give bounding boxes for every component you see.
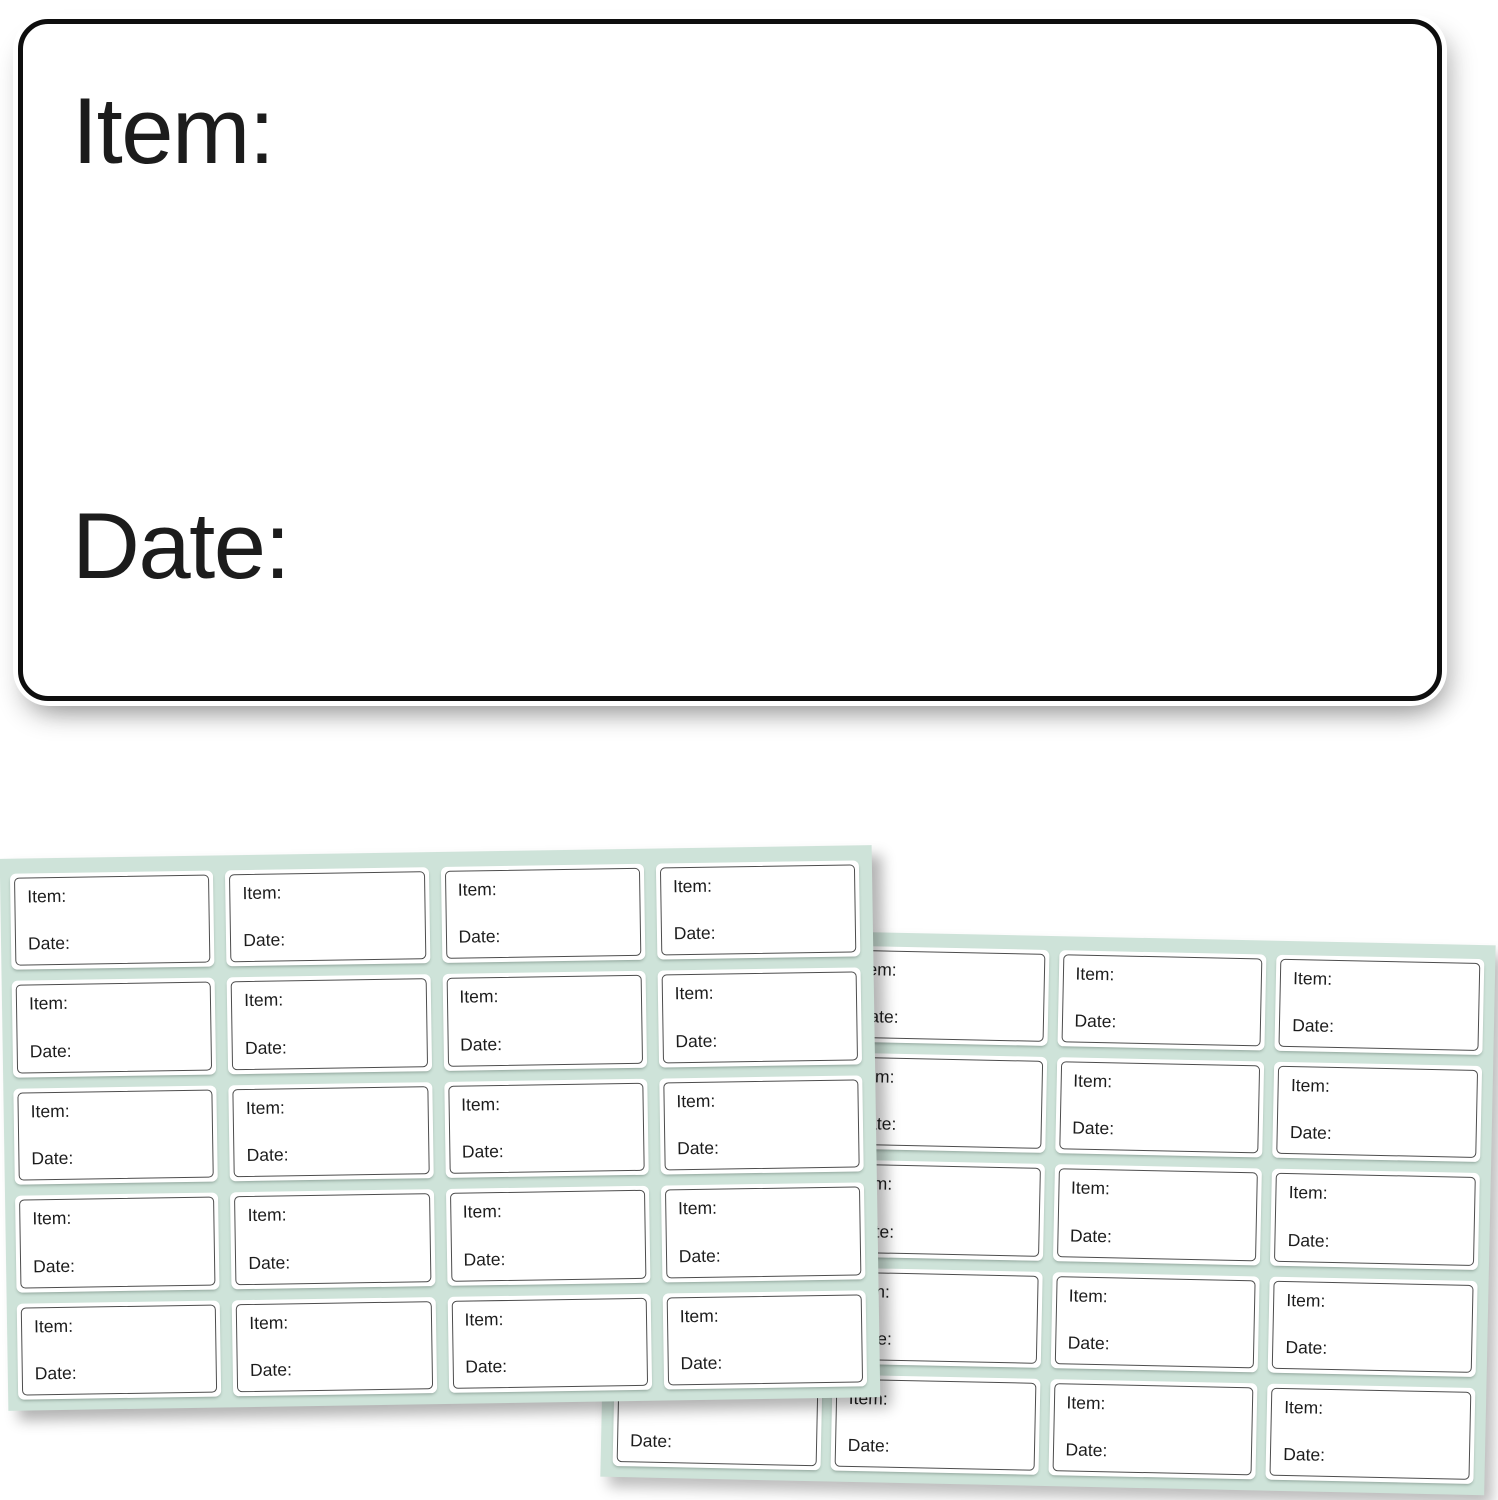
mini-item-text: Item: [680, 1305, 719, 1327]
mini-label-border: Item:Date: [450, 1190, 647, 1281]
mini-date-text: Date: [31, 1148, 73, 1170]
mini-label: Item:Date: [232, 1297, 437, 1397]
mini-date-text: Date: [1065, 1439, 1107, 1461]
mini-item-text: Item: [1073, 1071, 1112, 1093]
mini-item-text: Item: [29, 993, 68, 1015]
mini-label-border: Item:Date: [446, 975, 643, 1066]
mini-label-border: Item:Date: [1272, 1280, 1474, 1372]
mini-date-text: Date: [35, 1363, 77, 1385]
mini-label: Item:Date: [1050, 1272, 1260, 1373]
mini-date-text: Date: [465, 1356, 507, 1378]
mini-item-text: Item: [1291, 1075, 1330, 1097]
mini-item-text: Item: [246, 1097, 285, 1119]
mini-label: Item:Date: [657, 968, 862, 1068]
mini-label: Item:Date: [1048, 1379, 1258, 1480]
mini-date-text: Date: [248, 1252, 290, 1274]
mini-label-border: Item:Date: [660, 864, 857, 955]
mini-label-border: Item:Date: [1057, 1169, 1259, 1261]
product-photo: { "big_label": { "item": "Item:", "date"… [0, 0, 1498, 1500]
mini-item-text: Item: [249, 1312, 288, 1334]
mini-label-border: Item:Date: [666, 1294, 863, 1385]
mini-date-text: Date: [250, 1359, 292, 1381]
mini-item-text: Item: [32, 1208, 71, 1230]
mini-label: Item:Date: [1275, 955, 1485, 1056]
mini-label: Item:Date: [440, 864, 645, 964]
mini-item-text: Item: [27, 886, 66, 908]
mini-date-text: Date: [1287, 1230, 1329, 1252]
mini-label-border: Item:Date: [21, 1304, 218, 1395]
mini-item-text: Item: [676, 1090, 715, 1112]
mini-label: Item:Date: [662, 1290, 867, 1390]
mini-date-text: Date: [245, 1037, 287, 1059]
mini-label: Item:Date: [229, 1082, 434, 1182]
mini-label: Item:Date: [15, 1193, 220, 1293]
mini-label: Item:Date: [656, 860, 861, 960]
mini-label: Item:Date: [1057, 950, 1267, 1051]
mini-label: Item:Date: [659, 1075, 864, 1175]
mini-label: Item:Date: [1270, 1169, 1480, 1270]
mini-label: Item:Date: [230, 1189, 435, 1289]
mini-label-border: Item:Date: [19, 1197, 216, 1288]
mini-item-text: Item: [1286, 1290, 1325, 1312]
date-field-label: Date: [72, 499, 289, 593]
mini-item-text: Item: [1071, 1178, 1110, 1200]
mini-date-text: Date: [243, 930, 285, 952]
mini-item-text: Item: [1075, 964, 1114, 986]
mini-item-text: Item: [461, 1094, 500, 1116]
mini-date-text: Date: [1072, 1118, 1114, 1140]
mini-label-border: Item:Date: [663, 1079, 860, 1170]
mini-item-text: Item: [242, 882, 281, 904]
mini-label-border: Item:Date: [448, 1083, 645, 1174]
mini-label-border: Item:Date: [1279, 959, 1481, 1051]
sample-label-large: Item: Date: [13, 14, 1447, 706]
mini-label-border: Item:Date: [236, 1301, 433, 1392]
mini-date-text: Date: [630, 1430, 672, 1452]
mini-item-text: Item: [34, 1315, 73, 1337]
mini-date-text: Date: [679, 1245, 721, 1267]
mini-date-text: Date: [460, 1034, 502, 1056]
mini-label-border: Item:Date: [661, 972, 858, 1063]
mini-date-text: Date: [1070, 1225, 1112, 1247]
mini-label-border: Item:Date: [16, 982, 213, 1073]
mini-date-text: Date: [458, 926, 500, 948]
mini-item-text: Item: [31, 1101, 70, 1123]
mini-date-text: Date: [674, 923, 716, 945]
mini-label-border: Item:Date: [1270, 1388, 1472, 1480]
mini-item-text: Item: [1288, 1182, 1327, 1204]
mini-label: Item:Date: [1266, 1383, 1476, 1484]
mini-label: Item:Date: [12, 978, 217, 1078]
mini-item-text: Item: [464, 1309, 503, 1331]
mini-label-border: Item:Date: [14, 875, 211, 966]
mini-date-text: Date: [680, 1353, 722, 1375]
mini-label: Item:Date: [447, 1293, 652, 1393]
mini-label-border: Item:Date: [1054, 1276, 1256, 1368]
mini-label-border: Item:Date: [1276, 1066, 1478, 1158]
mini-label-border: Item:Date: [451, 1297, 648, 1388]
mini-item-text: Item: [673, 876, 712, 898]
mini-label: Item:Date: [444, 1079, 649, 1179]
mini-date-text: Date: [1292, 1015, 1334, 1037]
item-field-label: Item: [72, 84, 273, 178]
mini-label-border: Item:Date: [233, 1086, 430, 1177]
mini-date-text: Date: [1285, 1337, 1327, 1359]
mini-date-text: Date: [33, 1255, 75, 1277]
mini-label: Item:Date: [10, 871, 215, 971]
mini-label: Item:Date: [17, 1300, 222, 1400]
label-border-frame: Item: Date: [18, 19, 1442, 701]
mini-date-text: Date: [246, 1145, 288, 1167]
mini-label-border: Item:Date: [234, 1193, 431, 1284]
mini-item-text: Item: [463, 1201, 502, 1223]
label-sheet-left: Item:Date:Item:Date:Item:Date:Item:Date:… [0, 845, 880, 1411]
mini-label-border: Item:Date: [231, 979, 428, 1070]
mini-date-text: Date: [1283, 1444, 1325, 1466]
mini-item-text: Item: [247, 1205, 286, 1227]
mini-item-text: Item: [1066, 1392, 1105, 1414]
mini-item-text: Item: [1069, 1285, 1108, 1307]
mini-date-text: Date: [1074, 1011, 1116, 1033]
mini-label-border: Item:Date: [1061, 954, 1263, 1046]
mini-item-text: Item: [675, 983, 714, 1005]
mini-label-border: Item:Date: [665, 1187, 862, 1278]
mini-date-text: Date: [463, 1249, 505, 1271]
mini-label: Item:Date: [1055, 1057, 1265, 1158]
mini-date-text: Date: [677, 1138, 719, 1160]
mini-label: Item:Date: [225, 867, 430, 967]
mini-label: Item:Date: [445, 1186, 650, 1286]
mini-item-text: Item: [459, 986, 498, 1008]
mini-label: Item:Date: [1272, 1062, 1482, 1163]
mini-label: Item:Date: [227, 975, 432, 1075]
mini-label-border: Item:Date: [17, 1089, 214, 1180]
mini-date-text: Date: [675, 1030, 717, 1052]
mini-label-border: Item:Date: [1052, 1383, 1254, 1475]
mini-item-text: Item: [678, 1198, 717, 1220]
mini-item-text: Item: [458, 879, 497, 901]
mini-item-text: Item: [244, 990, 283, 1012]
mini-item-text: Item: [1293, 968, 1332, 990]
mini-date-text: Date: [848, 1435, 890, 1457]
mini-date-text: Date: [462, 1141, 504, 1163]
mini-label: Item:Date: [1268, 1276, 1478, 1377]
mini-date-text: Date: [30, 1041, 72, 1063]
mini-label-border: Item:Date: [229, 871, 426, 962]
mini-label: Item:Date: [13, 1085, 218, 1185]
mini-item-text: Item: [1284, 1397, 1323, 1419]
mini-label: Item:Date: [661, 1183, 866, 1283]
mini-label-border: Item:Date: [1274, 1173, 1476, 1265]
mini-label-border: Item:Date: [1059, 1061, 1261, 1153]
mini-date-text: Date: [1068, 1332, 1110, 1354]
mini-label: Item:Date: [1052, 1165, 1262, 1266]
mini-label-border: Item:Date: [444, 868, 641, 959]
mini-label: Item:Date: [442, 971, 647, 1071]
mini-date-text: Date: [1290, 1122, 1332, 1144]
mini-date-text: Date: [28, 933, 70, 955]
